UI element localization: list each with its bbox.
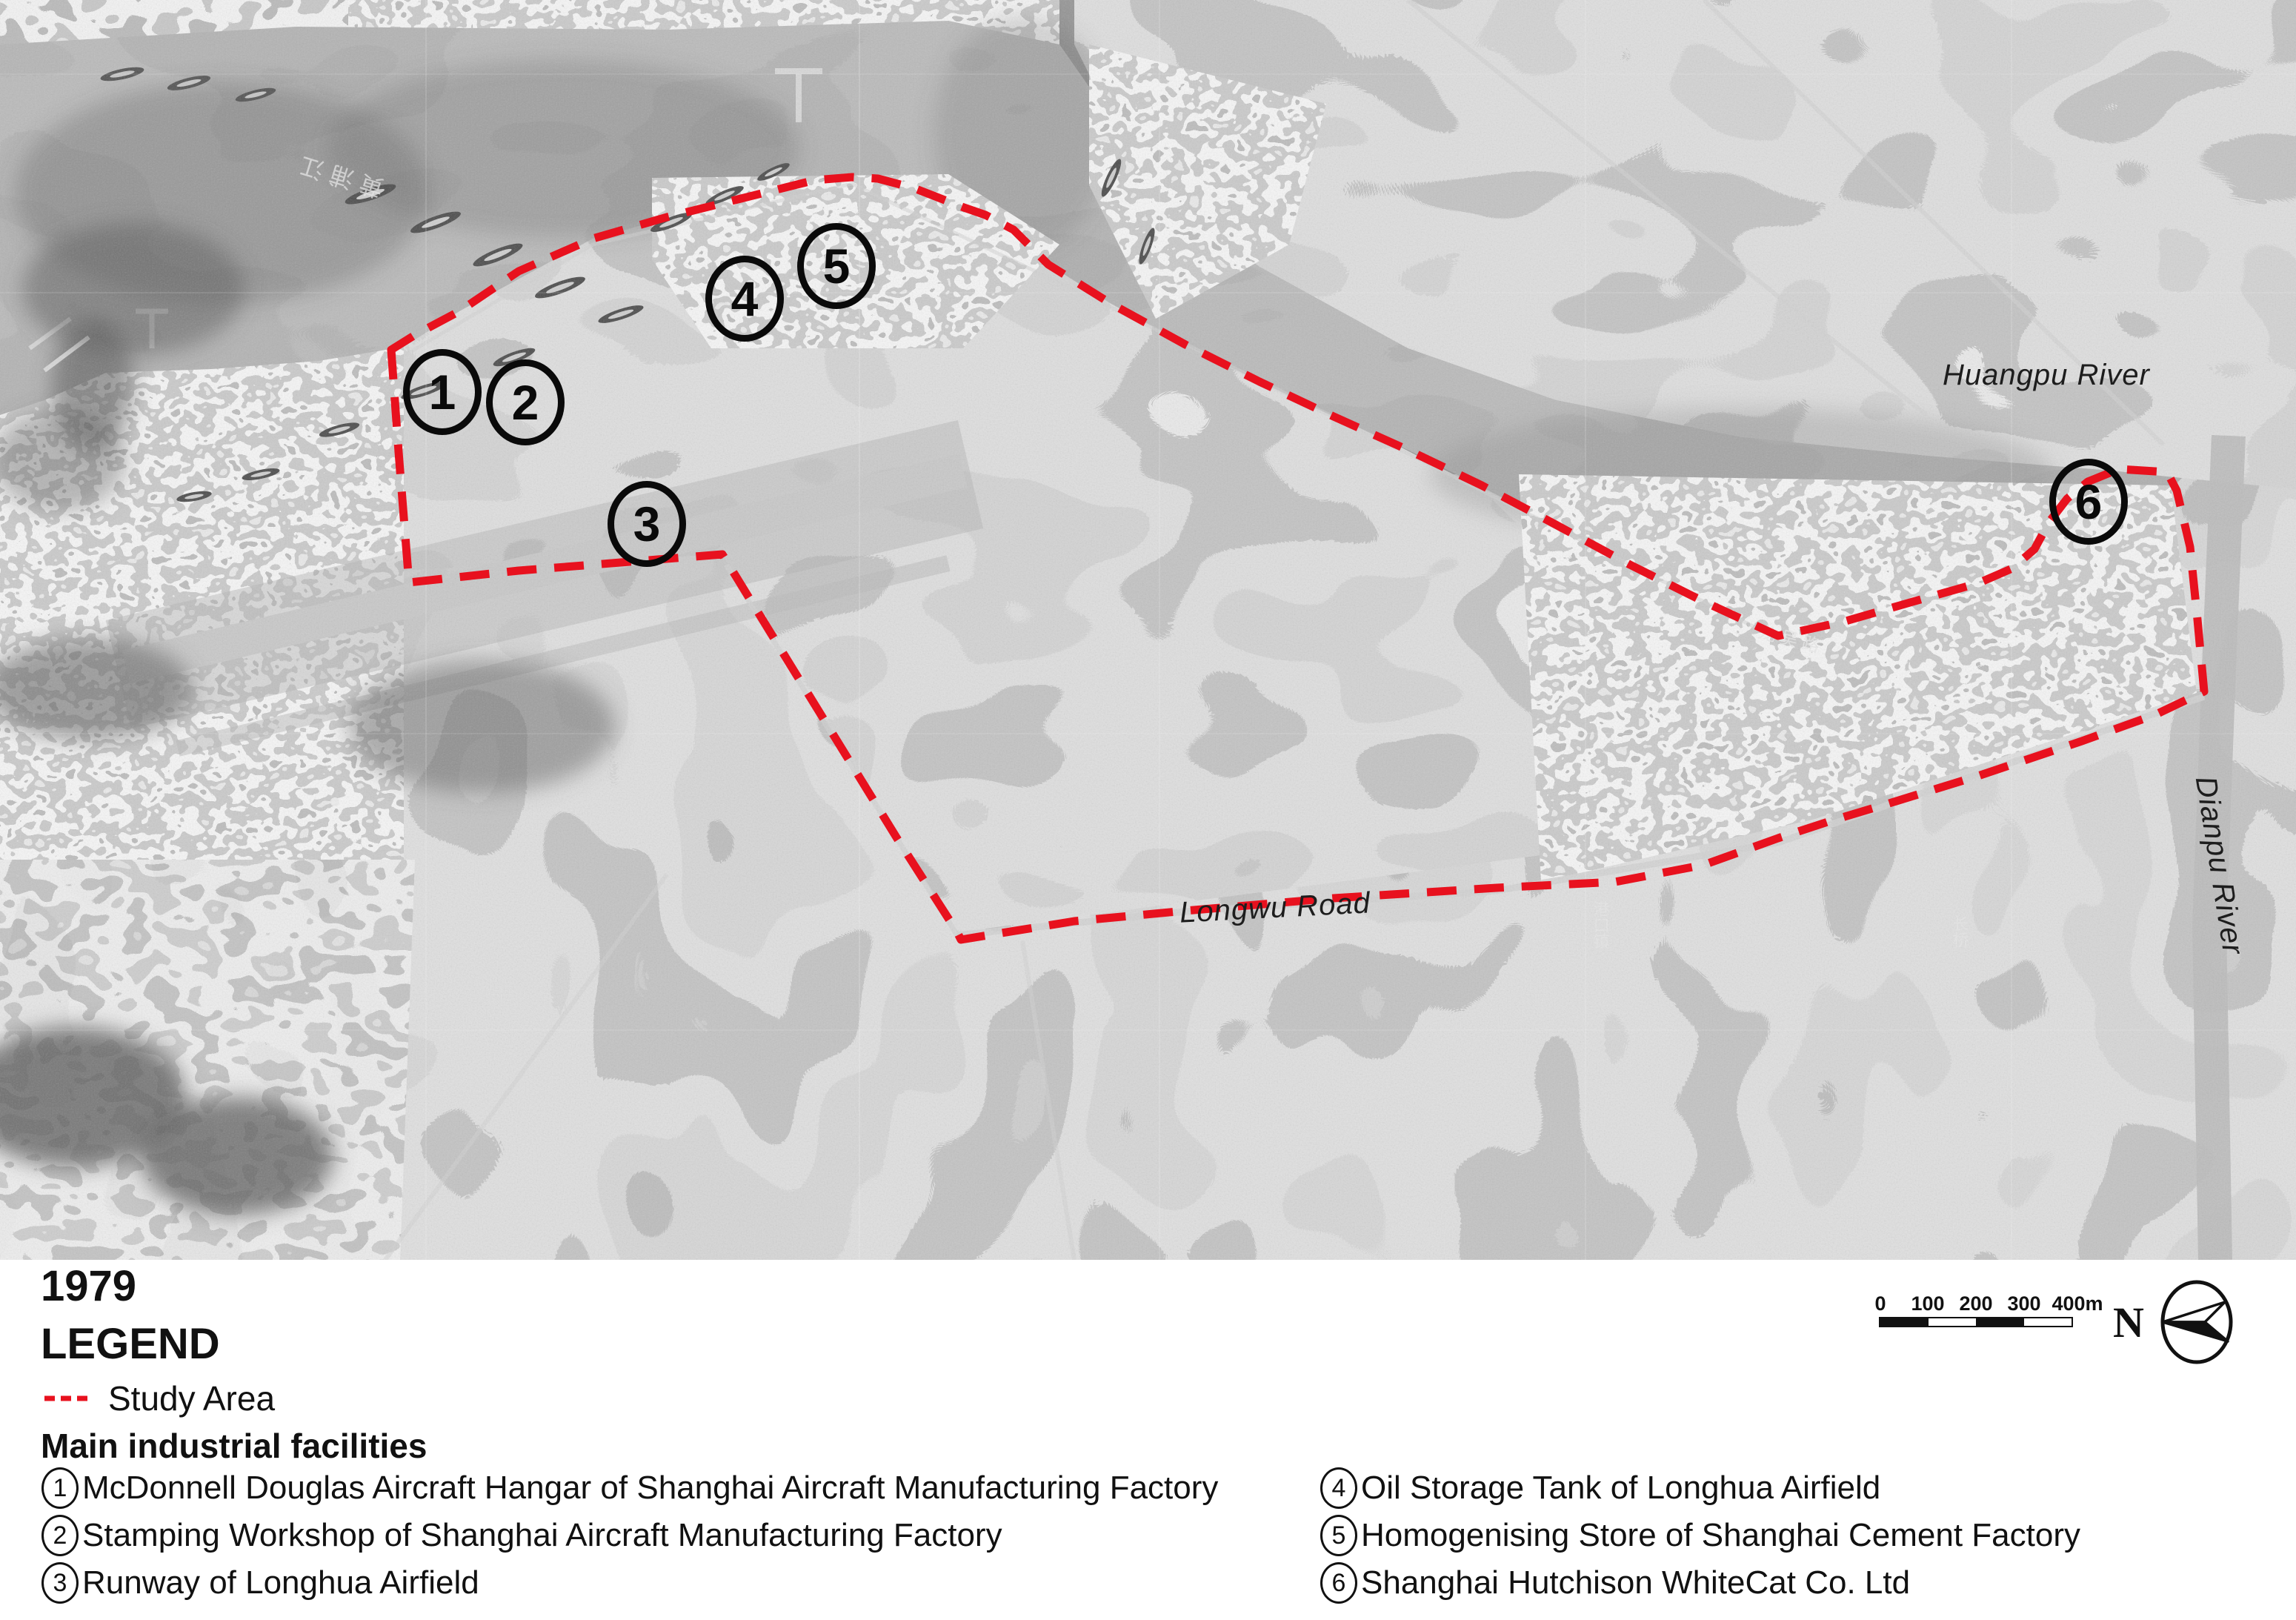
year-title: 1979 xyxy=(41,1261,136,1311)
legend-title: LEGEND xyxy=(41,1319,220,1369)
scale-segment-white-1 xyxy=(1929,1318,1977,1326)
huangpu-river-label: Huangpu River xyxy=(1943,359,2150,392)
marker-2: 2 xyxy=(486,359,565,445)
scale-tick-100: 100 xyxy=(1911,1292,1944,1315)
facilities-heading: Main industrial facilities xyxy=(41,1426,427,1466)
facility-item-4: 4 Oil Storage Tank of Longhua Airfield xyxy=(1320,1467,2080,1509)
study-area-dash-icon xyxy=(44,1394,90,1403)
scale-tick-0: 0 xyxy=(1874,1292,1886,1315)
marker-1: 1 xyxy=(403,349,482,435)
facility-label-4: Oil Storage Tank of Longhua Airfield xyxy=(1361,1470,1880,1507)
facility-number-6: 6 xyxy=(1320,1562,1357,1604)
scale-tick-200: 200 xyxy=(1959,1292,1992,1315)
aerial-map: 黄浦江 龙吴路 港口镇 长桥 1 2 3 4 5 6 Huangpu River… xyxy=(0,0,2296,1260)
facility-number-4: 4 xyxy=(1320,1467,1357,1509)
scale-bar: 0 100 200 300 400m xyxy=(1879,1292,2101,1327)
facility-number-2: 2 xyxy=(41,1515,79,1556)
scale-tick-300: 300 xyxy=(2007,1292,2040,1315)
scale-bar-segments xyxy=(1879,1317,2073,1327)
scale-tick-400m: 400m xyxy=(2052,1292,2103,1315)
north-label: N xyxy=(2113,1298,2144,1347)
study-area-label: Study Area xyxy=(108,1378,275,1418)
facility-label-1: McDonnell Douglas Aircraft Hangar of Sha… xyxy=(82,1470,1218,1507)
scale-segment-black-2 xyxy=(1976,1318,2024,1326)
facility-number-5: 5 xyxy=(1320,1515,1357,1556)
facility-label-2: Stamping Workshop of Shanghai Aircraft M… xyxy=(82,1517,1002,1554)
facility-item-2: 2 Stamping Workshop of Shanghai Aircraft… xyxy=(41,1515,1320,1556)
facility-label-6: Shanghai Hutchison WhiteCat Co. Ltd xyxy=(1361,1564,1910,1601)
map-figure: 黄浦江 龙吴路 港口镇 长桥 1 2 3 4 5 6 Huangpu River… xyxy=(0,0,2296,1620)
facility-item-3: 3 Runway of Longhua Airfield xyxy=(41,1562,1320,1604)
scale-bar-ticks: 0 100 200 300 400m xyxy=(1879,1292,2101,1315)
study-area-row: Study Area xyxy=(44,1378,275,1418)
marker-4: 4 xyxy=(705,256,784,342)
aerial-photo: 黄浦江 龙吴路 港口镇 长桥 xyxy=(0,0,2296,1260)
marker-3: 3 xyxy=(608,481,686,567)
facility-number-3: 3 xyxy=(41,1562,79,1604)
marker-6: 6 xyxy=(2049,459,2128,545)
grain-overlay xyxy=(0,0,2296,1260)
scale-segment-black-1 xyxy=(1880,1318,1929,1326)
facility-item-1: 1 McDonnell Douglas Aircraft Hangar of S… xyxy=(41,1467,1320,1509)
marker-5: 5 xyxy=(797,223,876,309)
scale-segment-white-2 xyxy=(2024,1318,2072,1326)
facility-item-6: 6 Shanghai Hutchison WhiteCat Co. Ltd xyxy=(1320,1562,2080,1604)
north-arrow: N xyxy=(2113,1278,2236,1367)
facility-label-3: Runway of Longhua Airfield xyxy=(82,1564,479,1601)
legend-panel: 1979 LEGEND Study Area Main industrial f… xyxy=(0,1260,2296,1620)
facility-number-1: 1 xyxy=(41,1467,79,1509)
facility-label-5: Homogenising Store of Shanghai Cement Fa… xyxy=(1361,1517,2080,1554)
compass-icon xyxy=(2157,1278,2236,1367)
facilities-list: 1 McDonnell Douglas Aircraft Hangar of S… xyxy=(41,1464,2080,1607)
facility-item-5: 5 Homogenising Store of Shanghai Cement … xyxy=(1320,1515,2080,1556)
